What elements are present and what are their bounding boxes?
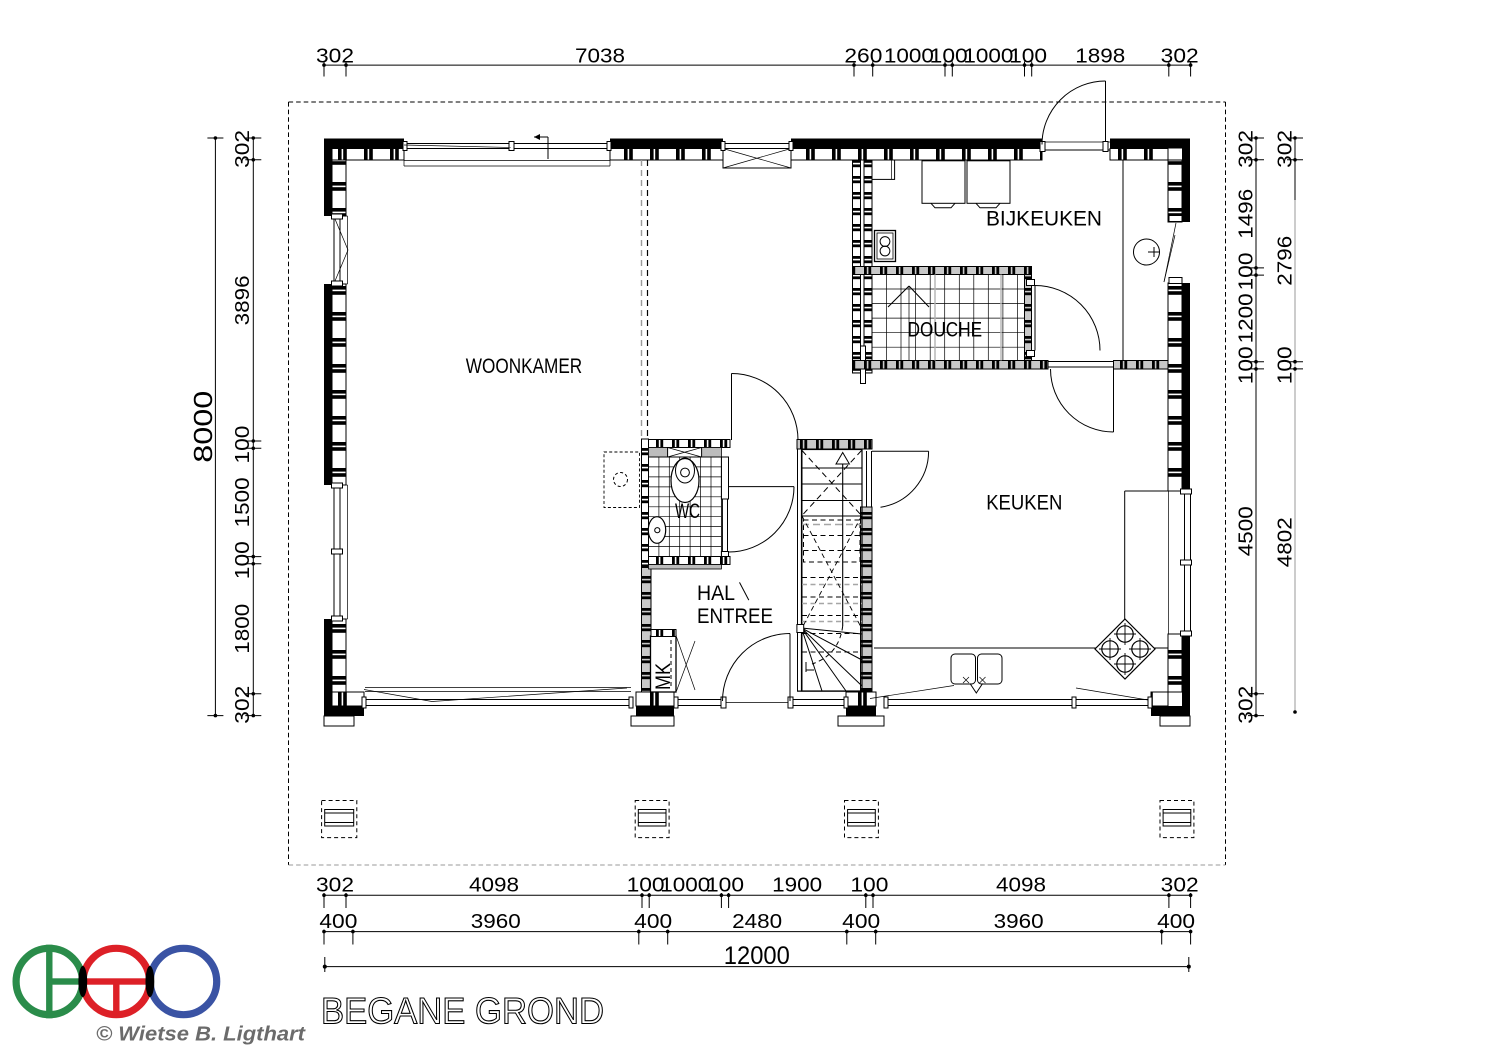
svg-text:DOUCHE: DOUCHE <box>908 319 983 342</box>
svg-text:1900: 1900 <box>772 875 822 897</box>
svg-text:302: 302 <box>232 130 254 168</box>
svg-text:100: 100 <box>1236 253 1258 291</box>
svg-text:302: 302 <box>1161 46 1199 68</box>
svg-text:100: 100 <box>627 875 665 897</box>
svg-text:100: 100 <box>1009 46 1047 68</box>
svg-text:302: 302 <box>1236 130 1258 168</box>
svg-text:1496: 1496 <box>1236 189 1258 239</box>
svg-text:1500: 1500 <box>232 477 254 527</box>
svg-text:© Wietse B. Ligthart: © Wietse B. Ligthart <box>96 1023 306 1046</box>
svg-text:2796: 2796 <box>1275 236 1297 286</box>
svg-text:302: 302 <box>1275 130 1297 168</box>
svg-text:100: 100 <box>706 875 744 897</box>
svg-text:WOONKAMER: WOONKAMER <box>466 355 582 378</box>
svg-text:WC: WC <box>675 500 700 523</box>
svg-text:4500: 4500 <box>1236 506 1258 556</box>
svg-text:4098: 4098 <box>469 875 519 897</box>
svg-text:KEUKEN: KEUKEN <box>986 492 1062 515</box>
svg-text:BEGANE GROND: BEGANE GROND <box>321 991 604 1032</box>
svg-text:BIJKEUKEN: BIJKEUKEN <box>986 207 1102 230</box>
svg-text:8000: 8000 <box>188 391 218 463</box>
svg-text:302: 302 <box>1236 686 1258 724</box>
svg-text:400: 400 <box>1157 911 1195 933</box>
svg-text:302: 302 <box>316 46 354 68</box>
svg-text:400: 400 <box>319 911 357 933</box>
svg-text:100: 100 <box>232 541 254 579</box>
svg-text:ENTREE: ENTREE <box>697 605 773 628</box>
svg-text:1000: 1000 <box>884 46 934 68</box>
svg-text:1000: 1000 <box>660 875 710 897</box>
svg-text:100: 100 <box>1236 346 1258 384</box>
svg-text:1000: 1000 <box>963 46 1013 68</box>
svg-text:4802: 4802 <box>1275 517 1297 567</box>
svg-text:302: 302 <box>232 686 254 724</box>
svg-text:400: 400 <box>634 911 672 933</box>
svg-text:12000: 12000 <box>724 942 790 970</box>
svg-text:7038: 7038 <box>575 46 625 68</box>
svg-text:100: 100 <box>850 875 888 897</box>
svg-text:1200: 1200 <box>1236 293 1258 343</box>
svg-text:302: 302 <box>1161 875 1199 897</box>
svg-text:302: 302 <box>316 875 354 897</box>
svg-text:4098: 4098 <box>996 875 1046 897</box>
svg-text:400: 400 <box>842 911 880 933</box>
svg-text:3960: 3960 <box>994 911 1044 933</box>
svg-text:3960: 3960 <box>471 911 521 933</box>
svg-text:2480: 2480 <box>732 911 782 933</box>
svg-text:HAL: HAL <box>697 582 735 605</box>
svg-text:260: 260 <box>844 46 882 68</box>
svg-text:3896: 3896 <box>232 275 254 325</box>
svg-text:100: 100 <box>1275 346 1297 384</box>
svg-text:100: 100 <box>232 426 254 464</box>
svg-text:1898: 1898 <box>1075 46 1125 68</box>
svg-text:1800: 1800 <box>232 604 254 654</box>
svg-text:MK: MK <box>652 663 675 690</box>
svg-text:100: 100 <box>930 46 968 68</box>
